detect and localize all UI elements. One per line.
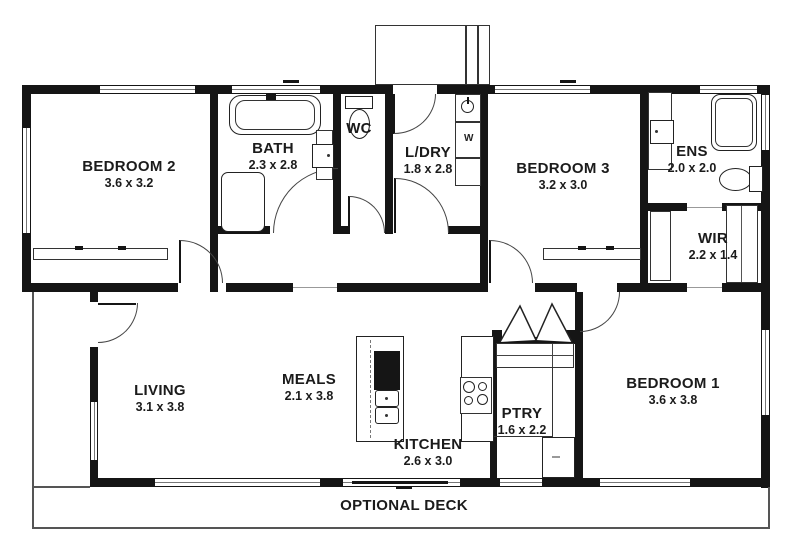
cooktop-burner (464, 396, 473, 405)
deck-outline (32, 527, 770, 529)
door-arc (395, 178, 449, 233)
cooktop-burner (477, 394, 488, 405)
window (761, 330, 770, 415)
robe-rail (650, 211, 671, 281)
room-label-bedroom-3: BEDROOM 3 3.2 x 3.0 (516, 160, 610, 192)
window (500, 478, 542, 487)
fridge-mark (552, 456, 560, 458)
wall (385, 94, 393, 234)
deck-outline (32, 486, 90, 488)
toilet-cistern (749, 166, 763, 192)
tick-mark (560, 80, 576, 83)
robe-bedroom3 (543, 248, 641, 260)
window (495, 85, 590, 94)
wall (320, 478, 343, 487)
window (155, 478, 320, 487)
vanity-basin (650, 120, 674, 144)
opening (293, 287, 337, 288)
door-arc (349, 196, 385, 233)
room-label-ens: ENS 2.0 x 2.0 (668, 143, 717, 175)
door-arc (98, 303, 138, 343)
robe-bedroom2 (33, 248, 168, 260)
bath-tap (266, 94, 276, 100)
opening (687, 287, 722, 288)
deck-outline (32, 292, 34, 528)
room-label-optional-deck: OPTIONAL DECK (340, 497, 468, 514)
door-arc (580, 292, 620, 332)
washer-label: W (464, 133, 473, 144)
room-label-wc: WC (346, 120, 372, 137)
toilet-cistern (345, 96, 373, 109)
rear-landing-step (477, 25, 479, 85)
island-appliance (374, 351, 400, 390)
room-label-pantry: PTRY 1.6 x 2.2 (498, 405, 547, 437)
window (700, 85, 757, 94)
robe-door-tick (75, 246, 83, 250)
door-arc (394, 94, 436, 134)
wall (480, 94, 488, 292)
room-label-laundry: L/DRY 1.8 x 2.8 (404, 144, 453, 176)
laundry-cabinet (455, 158, 481, 186)
deck-outline (768, 487, 770, 528)
robe-door-tick (578, 246, 586, 250)
wall (22, 85, 100, 94)
pantry-bench-line (497, 355, 573, 356)
window (761, 95, 770, 150)
bifold-doors (494, 298, 578, 344)
robe-door-tick (118, 246, 126, 250)
wall (535, 283, 577, 292)
toilet-bowl (719, 168, 752, 191)
window (100, 85, 195, 94)
room-label-bedroom-1: BEDROOM 1 3.6 x 3.8 (626, 375, 720, 407)
room-label-wir: WIR 2.2 x 1.4 (689, 230, 738, 262)
floor-plan: W BEDROOM 2 3.6 x 3.2 (0, 0, 792, 560)
wall (722, 283, 770, 292)
rear-landing (375, 25, 490, 85)
door-leaf (338, 168, 340, 234)
wall (90, 478, 155, 487)
wall (195, 85, 232, 94)
wall (226, 283, 293, 292)
wall (90, 347, 98, 402)
rail-line (741, 206, 742, 282)
window (90, 402, 98, 460)
wall (542, 478, 600, 487)
tick-mark (283, 80, 299, 83)
wall (648, 203, 687, 211)
wall (90, 292, 98, 302)
opening (687, 207, 722, 208)
bathtub-inner (235, 100, 315, 130)
shower-base (221, 172, 265, 232)
window (232, 85, 320, 94)
room-label-kitchen: KITCHEN 2.6 x 3.0 (394, 436, 463, 468)
wall (437, 85, 495, 94)
room-label-bedroom-2: BEDROOM 2 3.6 x 3.2 (82, 158, 176, 190)
vanity-basin (312, 144, 334, 168)
wall (640, 94, 648, 292)
room-label-living: LIVING 3.1 x 3.8 (134, 382, 186, 414)
wall (448, 226, 488, 234)
wall (590, 85, 700, 94)
shower-inner (715, 98, 753, 147)
wall (337, 283, 488, 292)
wall (761, 85, 770, 95)
window (22, 128, 31, 233)
sliding-door-panel (352, 481, 448, 484)
sink-drain (385, 414, 388, 417)
rear-landing-step (465, 25, 467, 85)
wall (90, 460, 98, 479)
sink-drain (385, 397, 388, 400)
basin-tap (655, 130, 658, 133)
basin-tap (327, 154, 330, 157)
wall (320, 85, 393, 94)
cooktop-burner (478, 382, 487, 391)
window (600, 478, 690, 487)
wall (22, 283, 178, 292)
pantry-bench-line (552, 344, 553, 367)
wall (617, 283, 687, 292)
wall (460, 478, 500, 487)
trough-tap (467, 97, 469, 104)
robe-door-tick (606, 246, 614, 250)
room-label-meals: MEALS 2.1 x 3.8 (282, 371, 336, 403)
wall (22, 85, 31, 128)
room-label-bath: BATH 2.3 x 2.8 (249, 140, 298, 172)
cooktop-burner (463, 381, 475, 393)
island-dashed-line (370, 340, 371, 438)
door-arc (490, 240, 533, 283)
wall (690, 478, 770, 487)
